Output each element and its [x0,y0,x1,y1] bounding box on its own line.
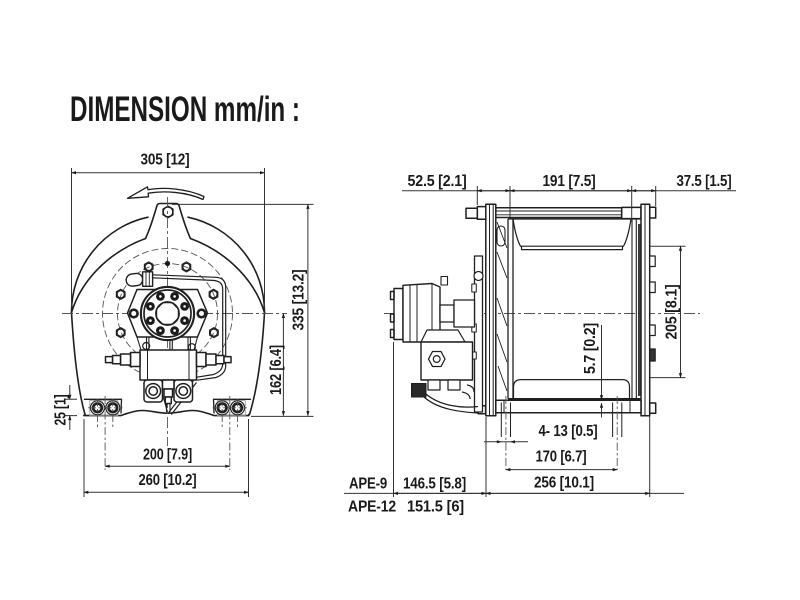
svg-text:25 [1]: 25 [1] [53,394,70,425]
svg-text:151.5 [6]: 151.5 [6] [407,499,464,516]
svg-text:191 [7.5]: 191 [7.5] [543,173,596,190]
svg-text:200 [7.9]: 200 [7.9] [143,447,192,464]
svg-text:5.7 [0.2]: 5.7 [0.2] [582,323,599,374]
svg-text:4- 13 [0.5]: 4- 13 [0.5] [539,423,598,440]
svg-text:52.5 [2.1]: 52.5 [2.1] [408,173,467,190]
svg-text:256 [10.1]: 256 [10.1] [534,475,594,492]
svg-text:DIMENSION mm/in :: DIMENSION mm/in : [70,90,300,129]
svg-text:260 [10.2]: 260 [10.2] [139,472,197,489]
svg-text:162 [6.4]: 162 [6.4] [268,345,285,395]
svg-text:37.5 [1.5]: 37.5 [1.5] [677,173,732,190]
svg-text:146.5 [5.8]: 146.5 [5.8] [403,476,466,493]
svg-text:335 [13.2]: 335 [13.2] [291,269,308,330]
svg-text:305 [12]: 305 [12] [141,152,190,169]
svg-text:APE-9: APE-9 [349,476,387,493]
svg-text:APE-12: APE-12 [348,499,396,516]
svg-text:170 [6.7]: 170 [6.7] [536,449,587,466]
svg-text:205 [8.1]: 205 [8.1] [664,284,681,339]
